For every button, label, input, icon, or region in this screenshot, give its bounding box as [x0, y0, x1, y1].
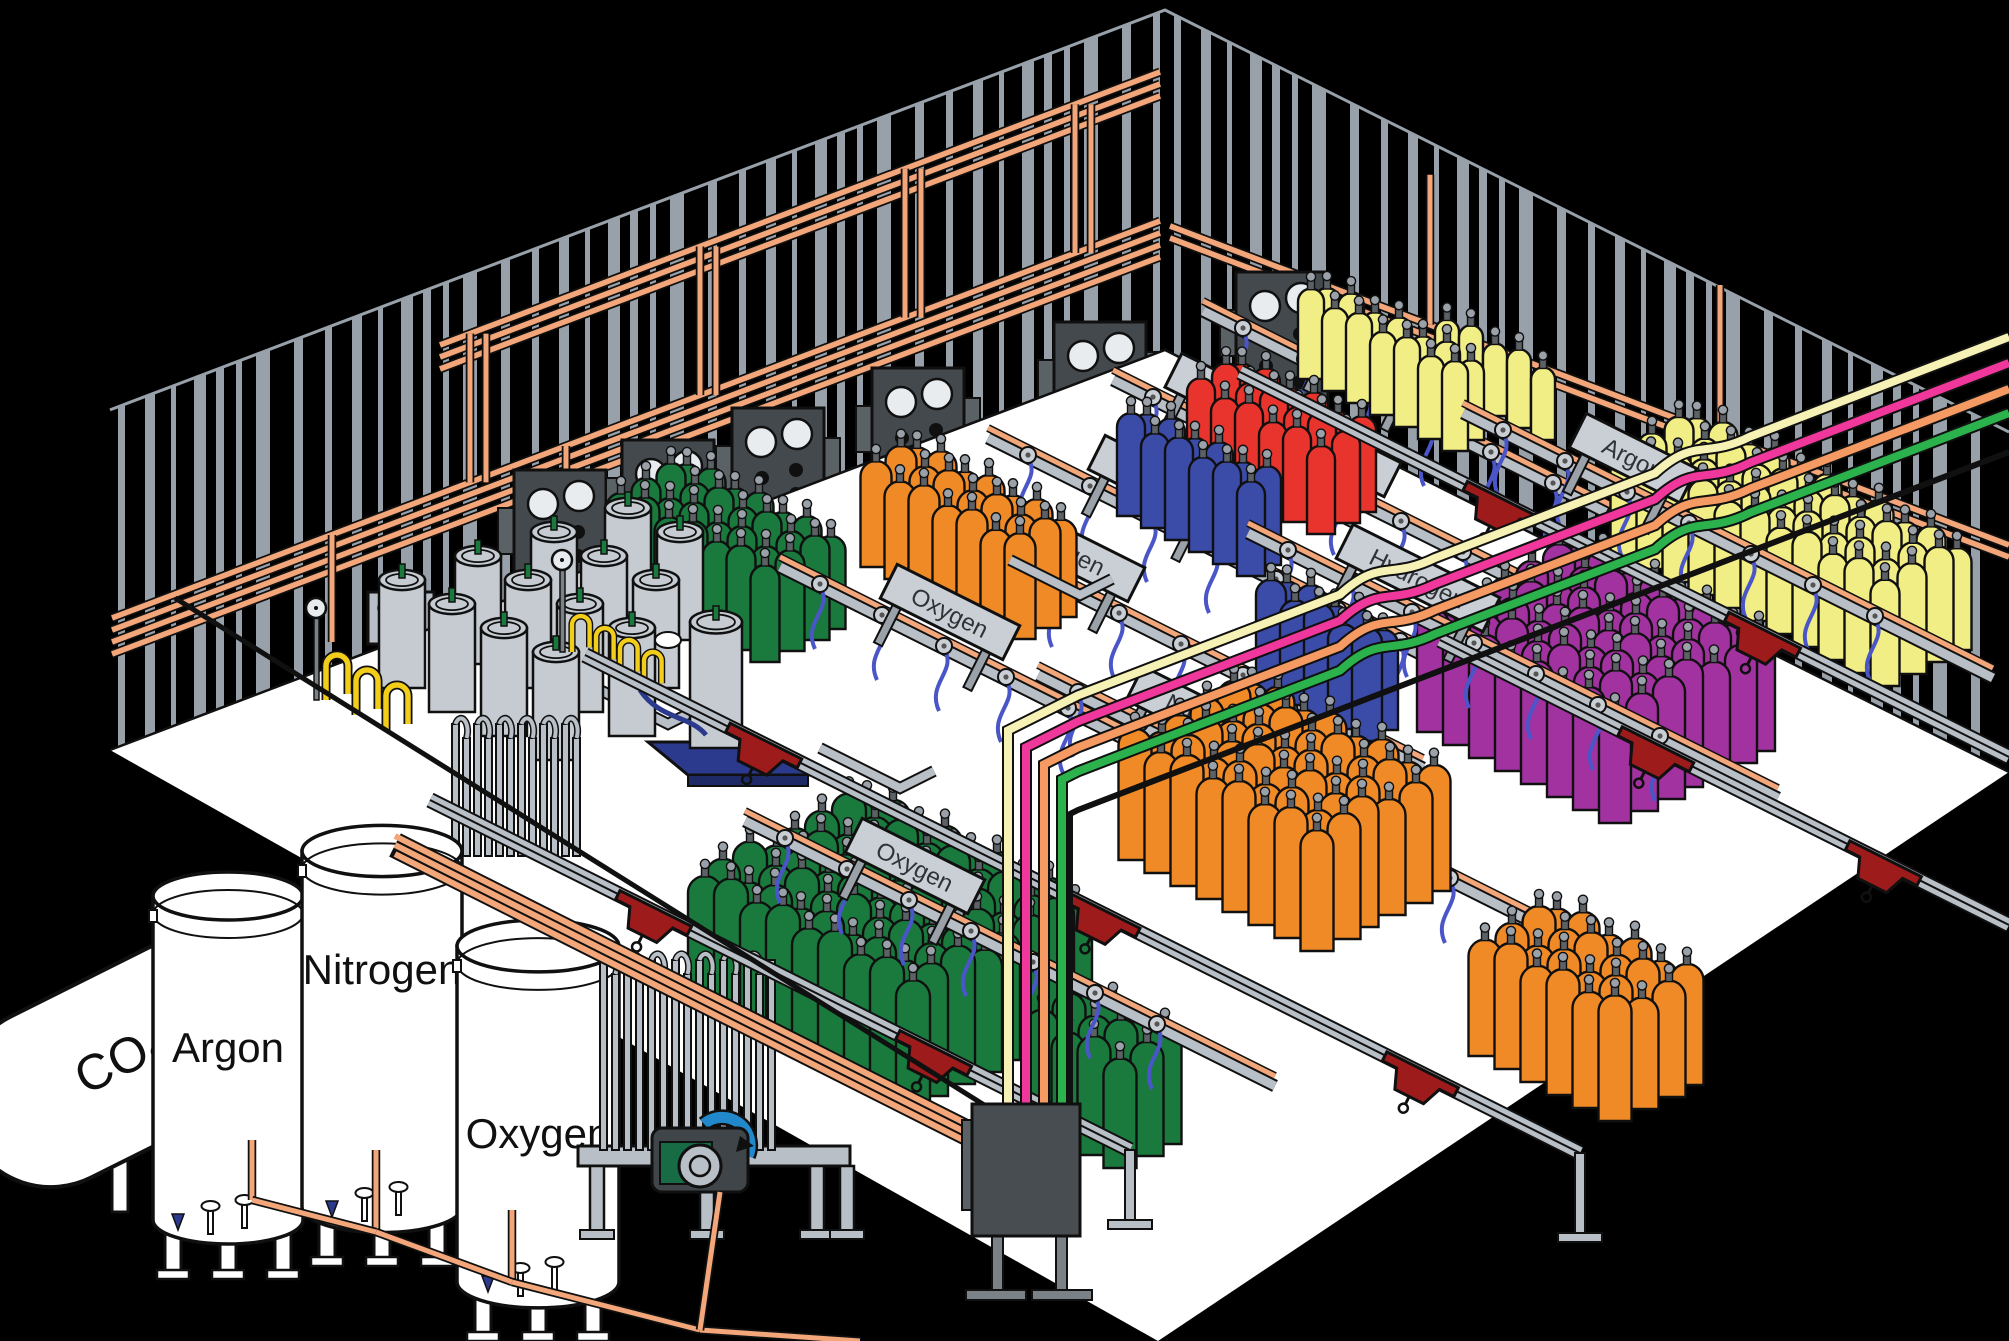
dewar-valve-icon	[577, 588, 583, 602]
plant-isometric-scene: ArgonCarbon DioxideHeliumNitrogenOxygenA…	[0, 0, 2009, 1341]
pressure-gauge-icon	[746, 427, 776, 457]
svg-text:Nitrogen: Nitrogen	[303, 946, 462, 993]
dewar-valve-icon	[713, 606, 719, 620]
dewar-valve-icon	[601, 540, 607, 554]
gas-filling-plant-diagram: ArgonCarbon DioxideHeliumNitrogenOxygenA…	[0, 0, 2009, 1341]
pressure-gauge-icon	[1104, 333, 1134, 363]
dewar-valve-icon	[551, 516, 557, 530]
pressure-gauge-icon	[782, 419, 812, 449]
dewar-valve-icon	[475, 540, 481, 554]
dewar-valve-icon	[629, 612, 635, 626]
dewar-valve-icon	[553, 636, 559, 650]
pressure-gauge-icon	[1250, 291, 1280, 321]
funnel-icon	[655, 632, 681, 648]
cryogenic-pump	[652, 1117, 754, 1192]
storage-tank-argon: Argon	[149, 872, 303, 1279]
dewar-valve-icon	[399, 564, 405, 578]
pressure-gauge-icon	[1068, 341, 1098, 371]
dewar-valve-icon	[525, 564, 531, 578]
dewar-valve-icon	[677, 516, 683, 530]
dewar-valve-icon	[653, 564, 659, 578]
svg-text:Argon: Argon	[172, 1024, 284, 1071]
dewar-valve-icon	[625, 492, 631, 506]
dewar-valve-icon	[501, 612, 507, 626]
pressure-gauge-icon	[922, 379, 952, 409]
pressure-gauge-icon	[886, 387, 916, 417]
pressure-gauge-icon	[528, 489, 558, 519]
dewar-valve-icon	[449, 588, 455, 602]
storage-tank-oxygen: Oxygen	[453, 920, 619, 1341]
pressure-gauge-icon	[564, 481, 594, 511]
